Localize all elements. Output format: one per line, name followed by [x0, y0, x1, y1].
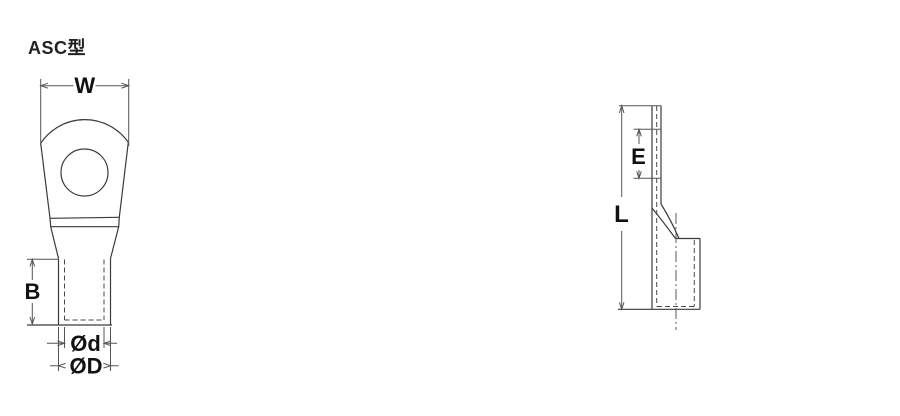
b-label: B	[25, 279, 41, 304]
head-right-side	[111, 142, 129, 258]
od-big-arrow-left-icon	[59, 363, 66, 368]
technical-drawing-svg: W B Ød	[0, 0, 900, 416]
dimension-B: B	[25, 259, 59, 324]
dimension-W: W	[41, 73, 129, 146]
dimension-inner-diameter: Ød	[47, 327, 117, 356]
head-arc	[41, 120, 129, 144]
l-label: L	[614, 201, 629, 228]
side-view: L E	[614, 106, 700, 330]
e-label: E	[631, 144, 646, 169]
side-view-outline	[618, 106, 700, 330]
outer-diameter-label: ØD	[70, 354, 103, 379]
od-big-arrow-right-icon	[104, 363, 111, 368]
inner-diameter-label: Ød	[70, 331, 101, 356]
head-left-side	[41, 143, 59, 258]
drawing-canvas: ASC型	[0, 0, 900, 416]
front-view-outline	[27, 120, 128, 325]
w-label: W	[74, 73, 95, 98]
palm-seam-upper	[50, 217, 119, 218]
stud-hole	[61, 149, 108, 196]
front-view: W B Ød	[25, 73, 129, 379]
dimension-L: L	[614, 106, 661, 310]
